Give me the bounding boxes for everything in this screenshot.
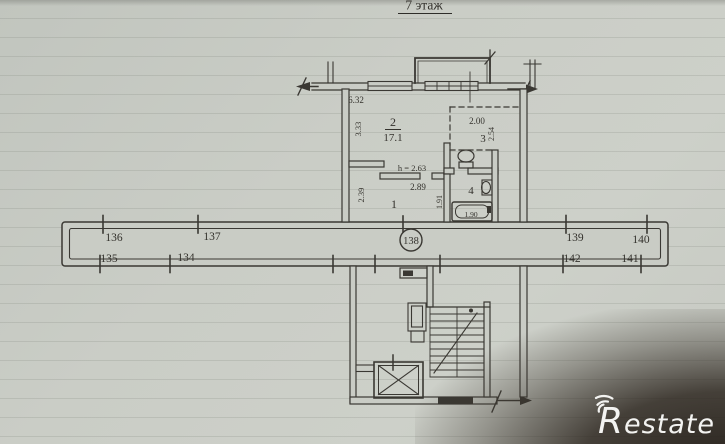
- room1-number: 1: [391, 197, 397, 211]
- floor-title: 7 этаж: [405, 0, 443, 13]
- restate-watermark: Restate: [598, 403, 715, 441]
- unit-number: 142: [563, 253, 581, 265]
- unit-number: 141: [621, 253, 639, 265]
- floor-plan-photo: 7 этаж: [0, 0, 725, 444]
- room4-number: 4: [468, 185, 474, 197]
- dim-hall-width: 2.89: [410, 182, 426, 192]
- unit-number-circled: 138: [403, 236, 419, 247]
- unit-number: 139: [566, 232, 584, 244]
- wall-break-arrow-left: [296, 78, 318, 95]
- dim-bath-depth: 1.91: [435, 195, 444, 209]
- unit-number: 134: [177, 252, 195, 264]
- page-title: 7 этаж: [398, 0, 452, 14]
- elevator-door-recess: [408, 303, 426, 342]
- dim-room2-depth: 3.33: [353, 122, 363, 137]
- dim-ceiling-height: h = 2.63: [398, 163, 426, 173]
- dim-room3-depth: 2.54: [487, 127, 496, 141]
- room2-area: 17.1: [383, 132, 402, 144]
- unit-number: 136: [105, 232, 123, 244]
- unit-number: 140: [632, 234, 650, 246]
- entry-threshold: [438, 398, 473, 404]
- stair-block: [350, 266, 532, 412]
- toilet-fixture: [458, 150, 474, 168]
- room3-number: 3: [480, 133, 486, 145]
- unit-number: 135: [100, 253, 118, 265]
- dim-room3-width: 2.00: [469, 116, 485, 126]
- balcony: [415, 50, 495, 83]
- unit-number: 137: [203, 231, 221, 243]
- elevator-shaft: [374, 355, 423, 398]
- signal-arcs-icon: [591, 391, 621, 413]
- room2-number: 2: [390, 115, 396, 129]
- north-exterior-wall: [296, 50, 541, 102]
- sink-fixture: [482, 180, 493, 195]
- stairs: [430, 307, 484, 377]
- dim-hall-depth: 2.39: [356, 188, 366, 203]
- service-closet: [400, 268, 427, 278]
- dim-top-width: 6.32: [348, 95, 364, 105]
- dim-bath-length: 1.90: [464, 210, 477, 219]
- floor-plan-drawing: 7 этаж: [0, 0, 725, 444]
- window-left: [368, 82, 412, 91]
